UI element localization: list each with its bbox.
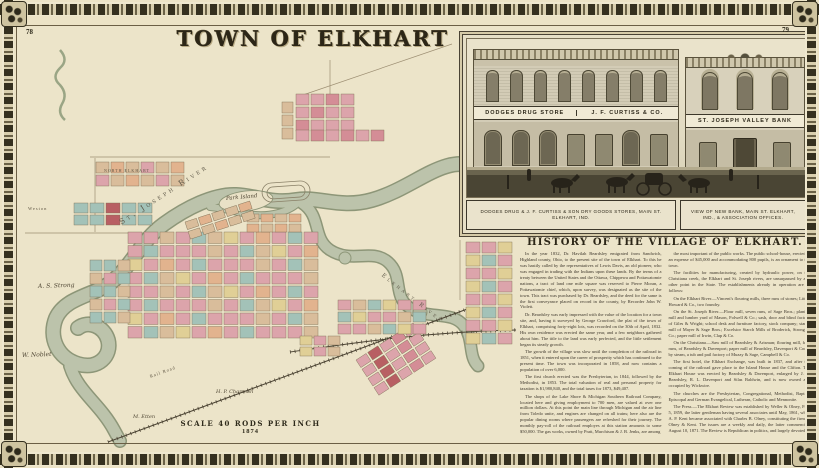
corner-ornament-icon (792, 441, 818, 467)
street (467, 167, 805, 197)
arch-window-icon (654, 70, 667, 102)
history-heading: HISTORY OF THE VILLAGE OF ELKHART. (520, 237, 810, 248)
curtiss-co-sign: J. F. CURTISS & CO. (576, 110, 679, 116)
street-scene: DODGES DRUG STORE J. F. CURTISS & CO. (466, 38, 806, 198)
arched-entrance-icon (622, 130, 640, 166)
history-paragraph: The first hotel, the Elkhart Exchange, w… (669, 359, 811, 389)
engraving-inset: DODGES DRUG STORE J. F. CURTISS & CO. (462, 34, 810, 234)
history-paragraph: On the Christiana.—Saw mill of Beardsley… (669, 340, 811, 358)
history-paragraph: The facilities for manufacturing, create… (669, 270, 811, 294)
history-paragraph: The churches are the Presbyterian, Congr… (669, 391, 811, 403)
arch-window-icon (558, 70, 571, 102)
history-paragraph: The first church erected was the Presbyt… (520, 374, 662, 392)
scale-text: SCALE 40 RODS PER INCH (158, 419, 343, 428)
bank-building: ST. JOSEPH VALLEY BANK (685, 57, 805, 169)
storefront (474, 122, 678, 166)
cornice (474, 50, 678, 60)
border-bottom (0, 452, 819, 466)
arched-entrance-icon (539, 130, 557, 166)
arch-window-icon (737, 72, 753, 110)
scale-year: 1874 (158, 428, 343, 435)
corner-ornament-icon (792, 1, 818, 27)
caption-right: VIEW OF NEW BANK, MAIN ST. ELKHART, IND.… (680, 200, 806, 230)
shop-window-icon (650, 134, 668, 166)
history-paragraph: Dr. Beardsley was early impressed with t… (520, 312, 662, 348)
sign-band: DODGES DRUG STORE J. F. CURTISS & CO. (474, 106, 678, 120)
arch-window-icon (486, 70, 499, 102)
arched-entrance-icon (484, 130, 502, 166)
caption-row: DODGES DRUG & J. F. CURTISS & SON DRY GO… (466, 200, 806, 230)
arched-entrance-icon (512, 130, 530, 166)
history-paragraph: On the Elkhart River.—Vincent's flouring… (669, 296, 811, 308)
map-title: TOWN OF ELKHART (168, 26, 458, 51)
border-right (805, 0, 817, 468)
curtiss-dodge-building: DODGES DRUG STORE J. F. CURTISS & CO. (473, 49, 679, 169)
bank-sign-band: ST. JOSEPH VALLEY BANK (686, 114, 804, 128)
shop-window-icon (595, 134, 613, 166)
arch-window-icon (582, 70, 595, 102)
atlas-page: TOWN OF ELKHART St. Joseph RiverPark Isl… (0, 0, 819, 468)
corner-ornament-icon (1, 1, 27, 27)
history-paragraph: the most important of the public works. … (669, 251, 811, 269)
history-paragraph: The shops of the Lake Shore & Michigan S… (520, 394, 662, 436)
map-scale: SCALE 40 RODS PER INCH 1874 (158, 419, 343, 435)
history-paragraph: The growth of the village was slow until… (520, 349, 662, 373)
cornice (686, 58, 804, 68)
border-left (2, 0, 14, 468)
bank-window-row (686, 68, 804, 110)
page-number-left: 78 (26, 28, 33, 36)
history-section: HISTORY OF THE VILLAGE OF ELKHART. In th… (520, 237, 810, 439)
upper-window-row (474, 66, 678, 102)
horses-and-carriage-icon (467, 167, 806, 197)
history-columns: In the year 1832, Dr. Havilah Beardsley … (520, 251, 810, 439)
arch-window-icon (702, 72, 718, 110)
dodges-drug-store-sign: DODGES DRUG STORE (474, 110, 576, 116)
arch-window-icon (510, 70, 523, 102)
arch-window-icon (772, 72, 788, 110)
history-paragraph: In the year 1832, Dr. Havilah Beardsley … (520, 251, 662, 310)
shop-window-icon (567, 134, 585, 166)
arch-window-icon (630, 70, 643, 102)
arch-window-icon (534, 70, 547, 102)
corner-ornament-icon (1, 441, 27, 467)
page-number-right: 79 (782, 26, 789, 34)
pediment-ornament-icon (722, 49, 768, 58)
border-top (0, 2, 819, 16)
caption-left: DODGES DRUG & J. F. CURTISS & SON DRY GO… (466, 200, 676, 230)
history-paragraph: On the St. Joseph River.—Flour mill, sev… (669, 309, 811, 339)
bank-sign: ST. JOSEPH VALLEY BANK (686, 118, 804, 124)
arch-window-icon (606, 70, 619, 102)
